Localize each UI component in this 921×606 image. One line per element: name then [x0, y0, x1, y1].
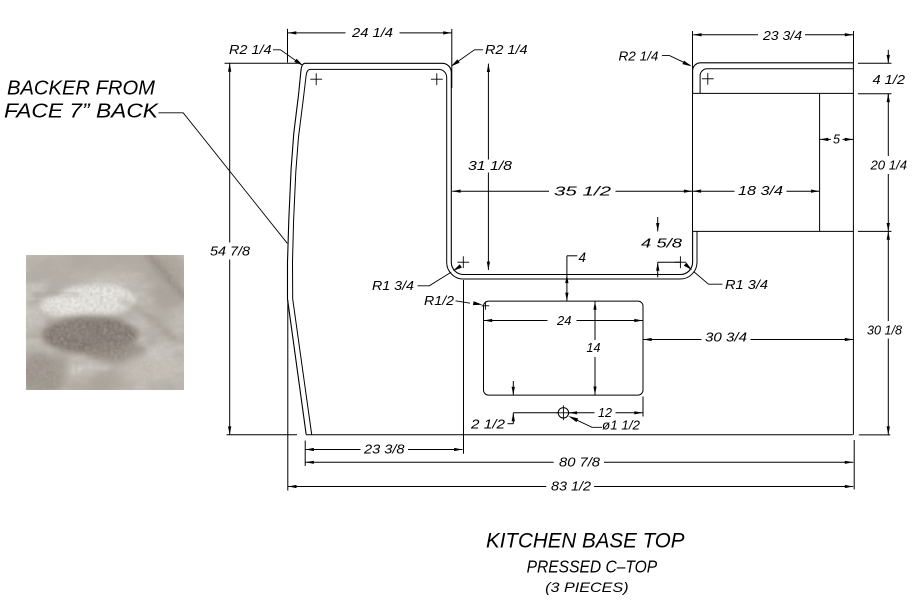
svg-text:ø1 1/2: ø1 1/2: [602, 419, 640, 433]
svg-text:R1 3/4: R1 3/4: [725, 278, 768, 292]
svg-text:5: 5: [833, 132, 840, 146]
svg-text:R2 1/4: R2 1/4: [485, 43, 528, 57]
svg-text:R2 1/4: R2 1/4: [619, 49, 659, 63]
svg-text:PRESSED C–TOP: PRESSED C–TOP: [527, 557, 658, 577]
svg-text:83 1/2: 83 1/2: [551, 480, 591, 494]
svg-text:R1/2: R1/2: [424, 294, 454, 308]
svg-text:4: 4: [579, 250, 587, 265]
svg-text:24: 24: [556, 313, 571, 328]
svg-text:R1 3/4: R1 3/4: [372, 279, 414, 293]
svg-text:FACE 7” BACK: FACE 7” BACK: [4, 100, 159, 123]
svg-text:4 5/8: 4 5/8: [641, 237, 682, 251]
svg-text:23 3/8: 23 3/8: [363, 442, 405, 456]
svg-text:12: 12: [598, 406, 612, 420]
svg-text:80 7/8: 80 7/8: [559, 455, 600, 469]
svg-text:KITCHEN BASE TOP: KITCHEN BASE TOP: [486, 529, 685, 552]
svg-text:R2 1/4: R2 1/4: [229, 43, 272, 57]
svg-text:24 1/4: 24 1/4: [351, 26, 393, 40]
svg-text:2 1/2: 2 1/2: [470, 418, 505, 432]
svg-text:4 1/2: 4 1/2: [873, 73, 906, 87]
svg-text:30 1/8: 30 1/8: [867, 324, 902, 338]
svg-text:30 3/4: 30 3/4: [705, 330, 747, 344]
svg-text:(3 PIECES): (3 PIECES): [545, 580, 628, 595]
svg-text:35 1/2: 35 1/2: [554, 184, 611, 198]
svg-text:31 1/8: 31 1/8: [468, 159, 512, 173]
svg-text:18 3/4: 18 3/4: [738, 184, 783, 198]
svg-text:14: 14: [587, 341, 601, 355]
svg-text:54 7/8: 54 7/8: [210, 245, 250, 259]
svg-text:20 1/4: 20 1/4: [869, 159, 907, 173]
svg-text:23 3/4: 23 3/4: [762, 29, 802, 43]
svg-text:BACKER FROM: BACKER FROM: [7, 76, 156, 99]
